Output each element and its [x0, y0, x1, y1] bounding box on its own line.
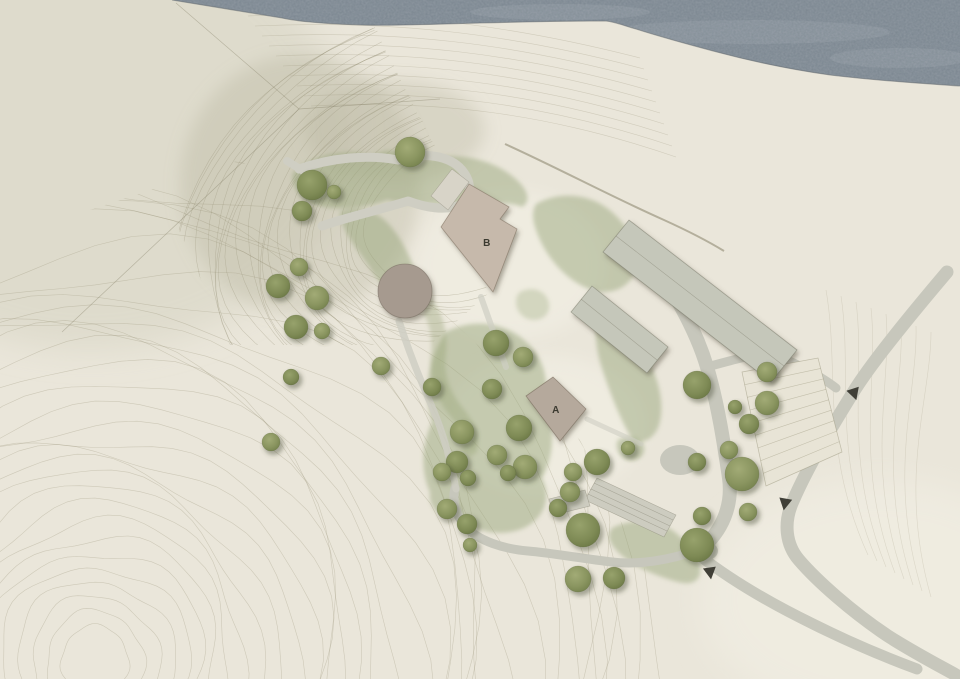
building-label-a: A: [552, 405, 560, 416]
building-label-b: B: [483, 238, 491, 249]
round-structure: [378, 264, 432, 318]
site-plan: B A: [0, 0, 960, 679]
site-plan-canvas: B A: [0, 0, 960, 679]
water-streak: [470, 4, 650, 20]
